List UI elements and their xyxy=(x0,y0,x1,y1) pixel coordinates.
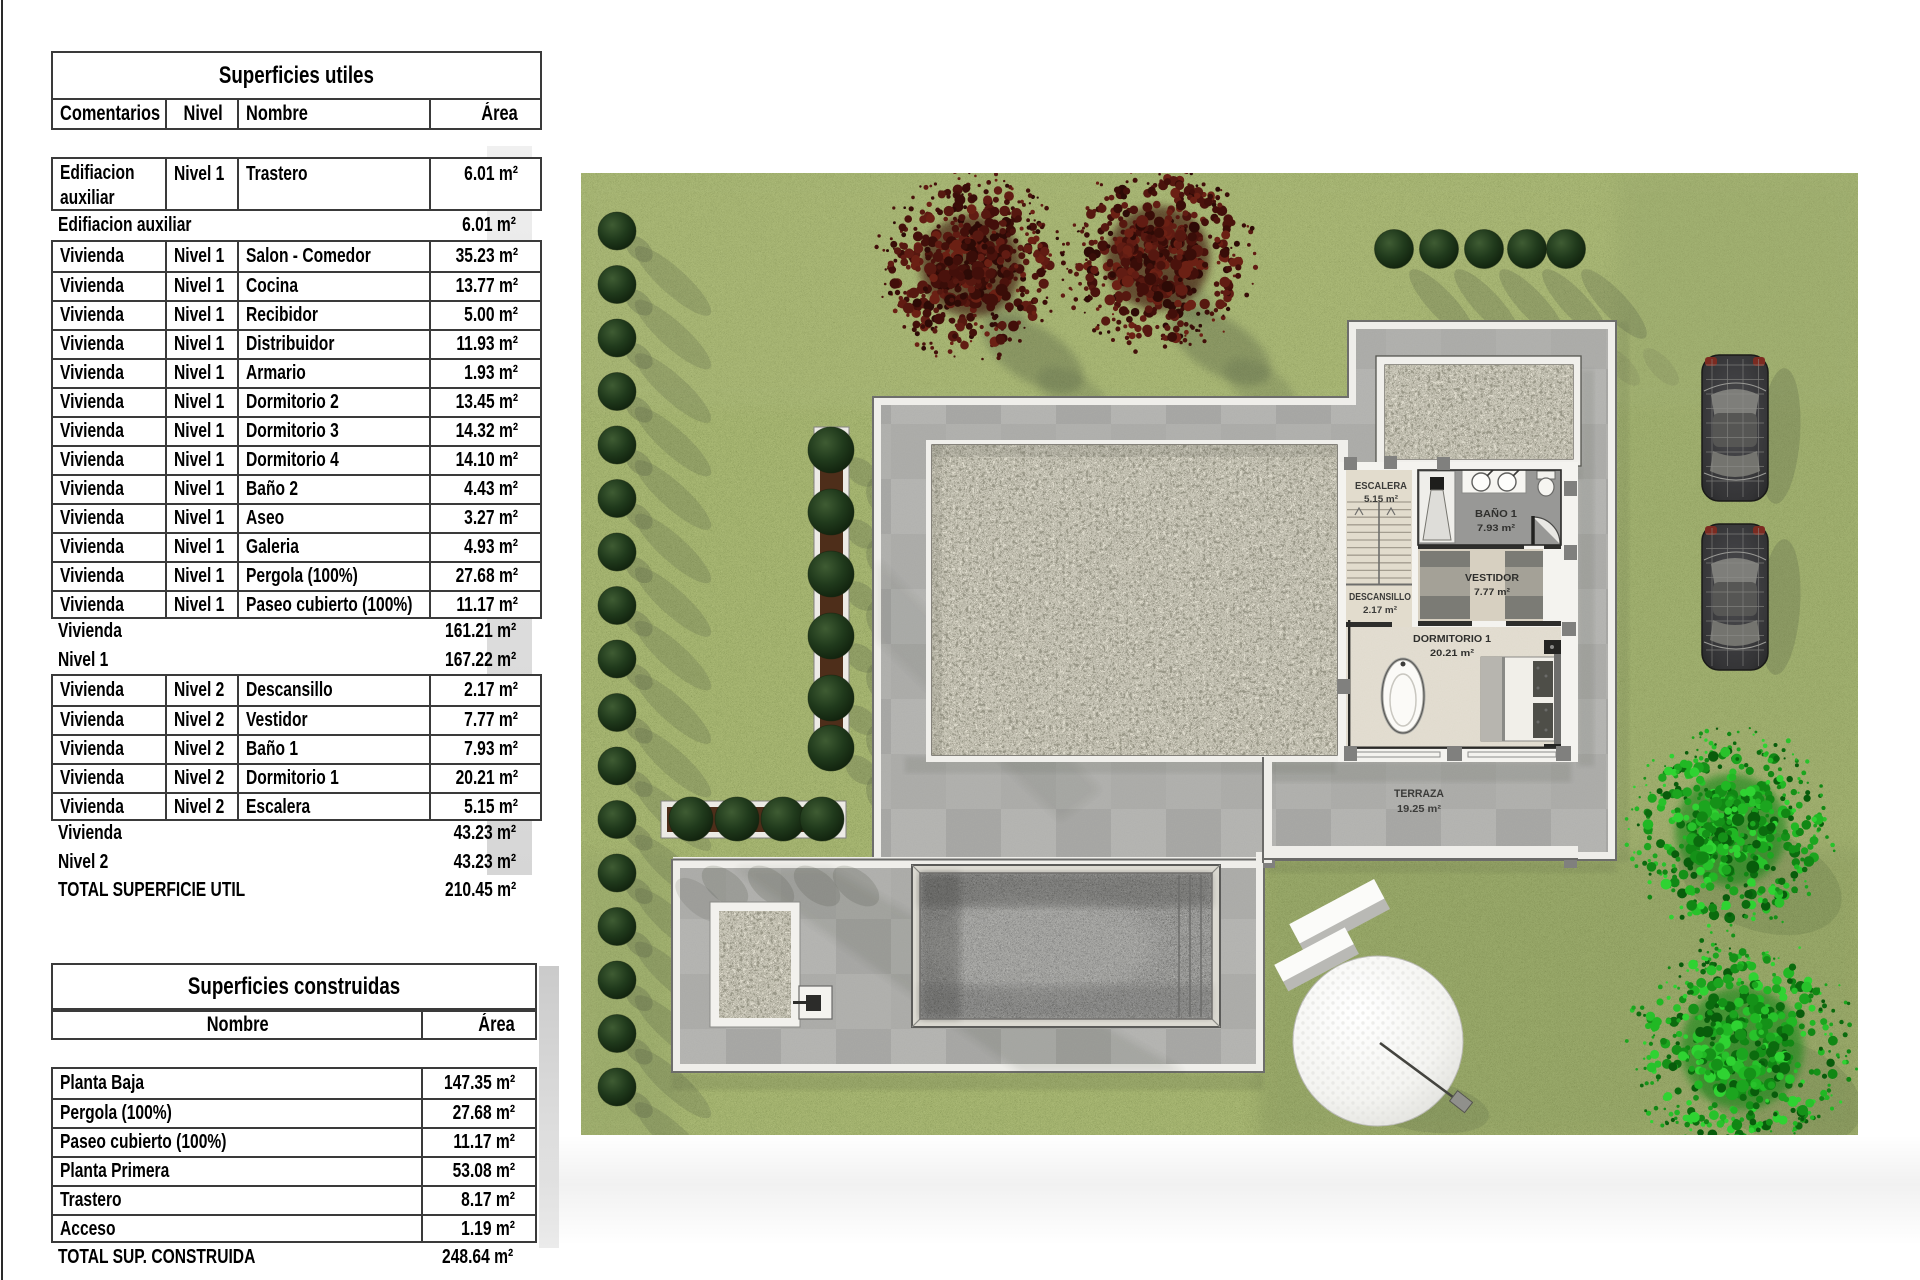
svg-text:20.21 m²: 20.21 m² xyxy=(1430,648,1474,659)
svg-text:DORMITORIO 1: DORMITORIO 1 xyxy=(1413,633,1491,645)
svg-text:ESCALERA: ESCALERA xyxy=(1355,480,1407,492)
svg-text:DESCANSILLO: DESCANSILLO xyxy=(1349,591,1411,603)
svg-text:BAÑO 1: BAÑO 1 xyxy=(1475,507,1517,520)
svg-text:7.77 m²: 7.77 m² xyxy=(1474,587,1510,598)
svg-text:7.93 m²: 7.93 m² xyxy=(1477,523,1515,534)
svg-text:VESTIDOR: VESTIDOR xyxy=(1465,572,1519,584)
svg-text:19.25 m²: 19.25 m² xyxy=(1397,804,1442,815)
svg-text:TERRAZA: TERRAZA xyxy=(1394,788,1444,800)
svg-text:5.15 m²: 5.15 m² xyxy=(1364,494,1398,505)
svg-text:2.17 m²: 2.17 m² xyxy=(1363,605,1397,616)
